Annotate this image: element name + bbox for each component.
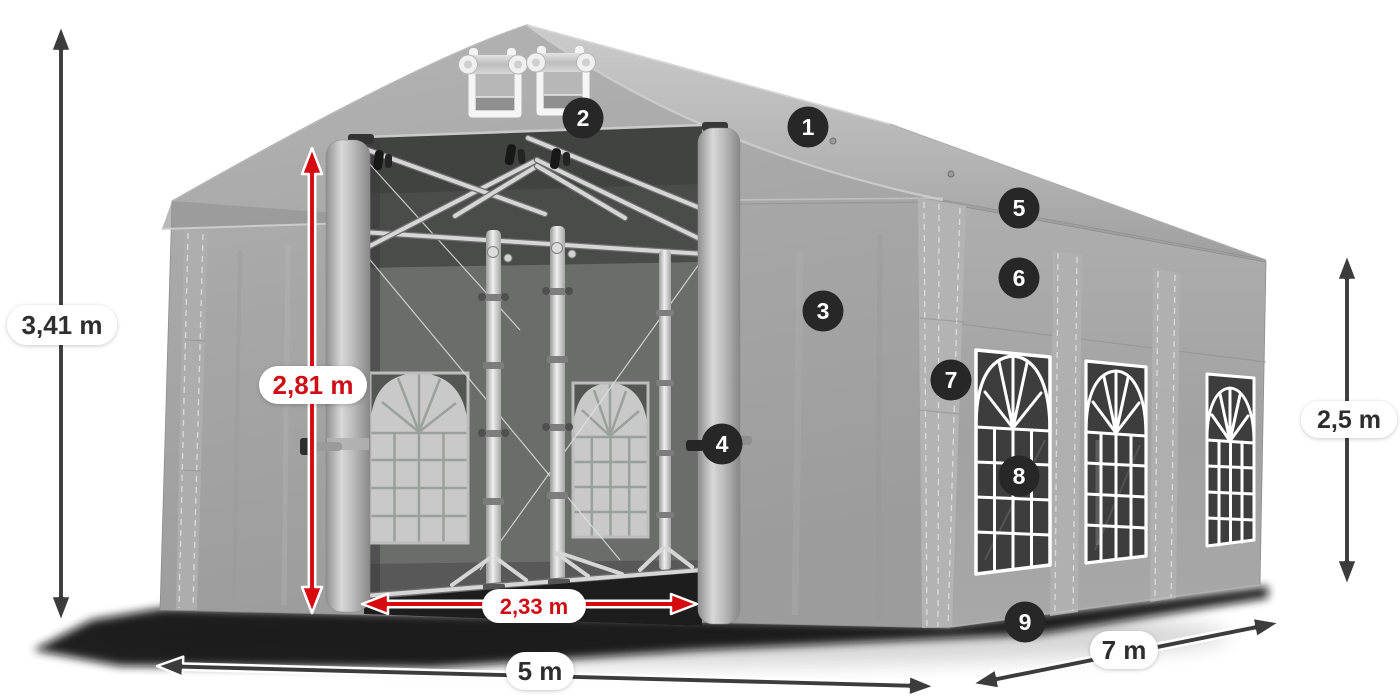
callout-badge-3: 3 — [803, 291, 844, 332]
tent-side-wall — [918, 198, 1266, 628]
entrance-height-value: 2,81 m — [273, 370, 354, 400]
dimension-label-total-height: 3,41 m — [7, 305, 117, 345]
svg-text:1: 1 — [802, 114, 815, 140]
side-window-3 — [1207, 374, 1254, 546]
side-wall-height-value: 2,5 m — [1317, 406, 1381, 434]
grommet — [948, 171, 954, 177]
svg-text:7: 7 — [945, 367, 958, 393]
side-window-2 — [1086, 361, 1146, 563]
callout-badge-7: 7 — [931, 360, 972, 401]
roof-vent-1 — [459, 48, 528, 114]
svg-text:8: 8 — [1013, 463, 1026, 489]
side-sleeve-1 — [1050, 250, 1082, 616]
callout-badge-6: 6 — [999, 258, 1040, 299]
door-handle-right — [686, 440, 704, 451]
svg-text:9: 9 — [1019, 609, 1032, 635]
callout-badge-8: 8 — [999, 456, 1040, 497]
front-width-value: 5 m — [518, 656, 563, 686]
interior-back-window-1 — [370, 373, 468, 543]
interior-back-window-2 — [573, 383, 648, 537]
dimension-label-side-wall-height: 2,5 m — [1301, 401, 1397, 438]
callout-badge-2: 2 — [563, 98, 604, 139]
svg-text:4: 4 — [716, 431, 729, 457]
callout-badge-9: 9 — [1005, 602, 1046, 643]
svg-text:3: 3 — [817, 298, 830, 324]
callout-badge-1: 1 — [788, 107, 829, 148]
dimension-label-entrance-width: 2,33 m — [482, 589, 586, 623]
callout-badge-5: 5 — [999, 188, 1040, 229]
svg-text:6: 6 — [1013, 265, 1026, 291]
tent-dimension-diagram: 3,41 m 2,81 m 2,33 m 5 m 7 m 2,5 m 1 — [0, 0, 1400, 700]
dimension-label-entrance-height: 2,81 m — [259, 366, 367, 404]
side-length-value: 7 m — [1102, 635, 1147, 665]
entrance-width-value: 2,33 m — [500, 594, 569, 619]
svg-text:2: 2 — [577, 105, 590, 131]
diagram-canvas: 3,41 m 2,81 m 2,33 m 5 m 7 m 2,5 m 1 — [0, 0, 1400, 700]
dimension-label-side-length: 7 m — [1090, 631, 1158, 669]
grommet — [830, 138, 836, 144]
side-sleeve-2 — [1150, 268, 1180, 602]
dimension-label-front-width: 5 m — [506, 652, 574, 690]
total-height-value: 3,41 m — [22, 310, 103, 340]
entrance-interior — [360, 118, 706, 630]
svg-text:5: 5 — [1013, 195, 1026, 221]
callout-badge-4: 4 — [702, 424, 743, 465]
